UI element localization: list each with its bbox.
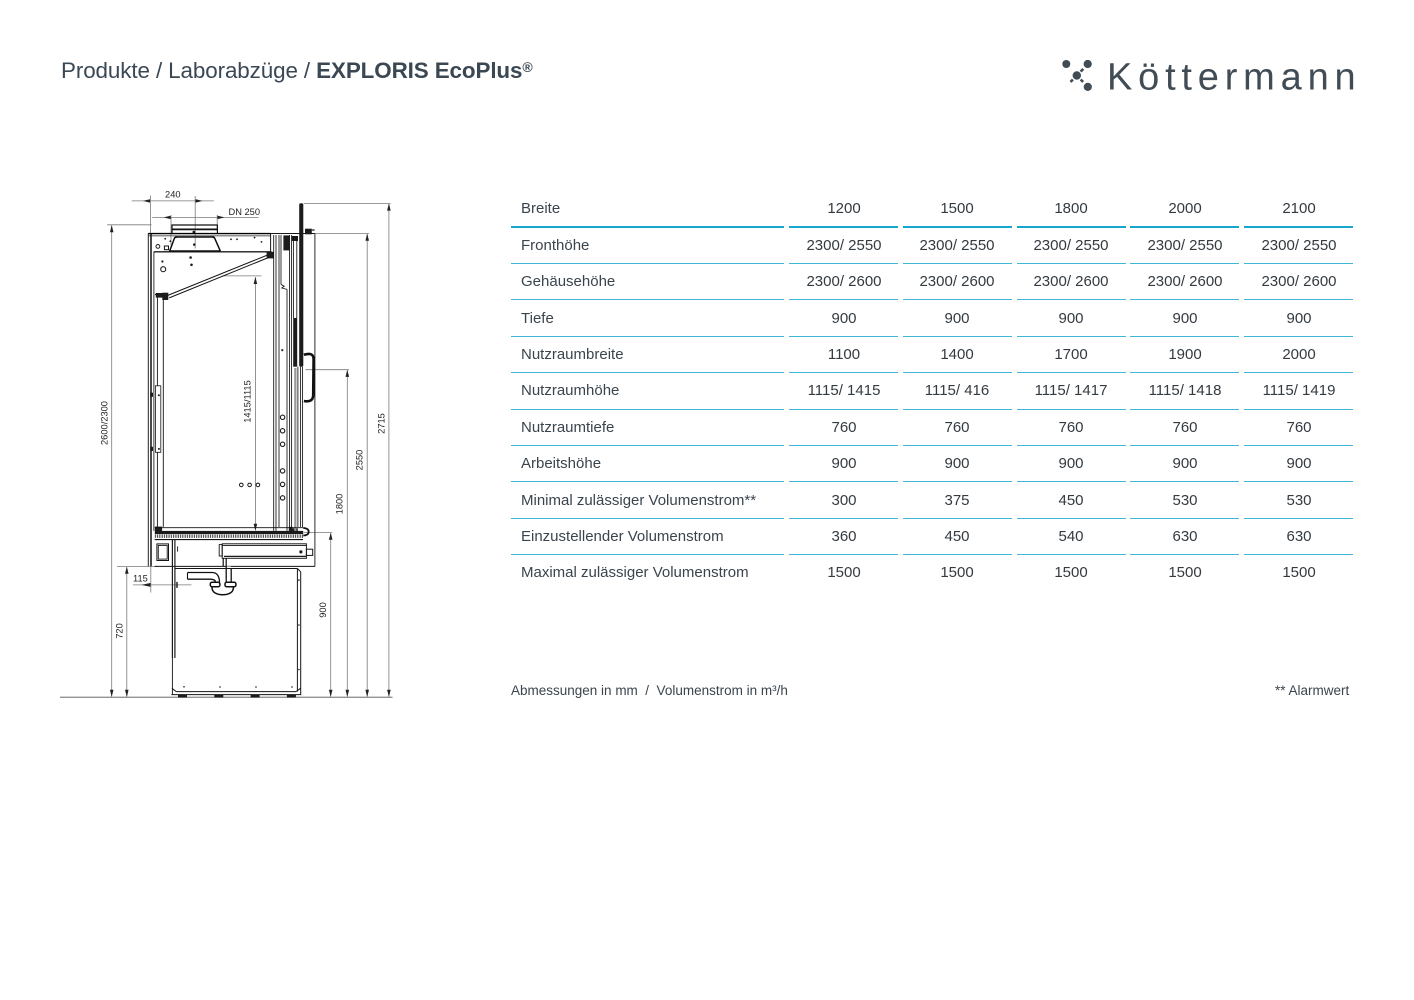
svg-text:1415/1115: 1415/1115 <box>242 380 252 423</box>
svg-text:115: 115 <box>133 574 148 584</box>
svg-text:900: 900 <box>318 602 328 618</box>
svg-text:2600/2300: 2600/2300 <box>99 401 109 445</box>
svg-text:2550: 2550 <box>355 450 365 471</box>
svg-text:1800: 1800 <box>335 494 345 515</box>
svg-text:DN 250: DN 250 <box>229 207 261 217</box>
svg-text:2715: 2715 <box>376 413 386 434</box>
svg-text:240: 240 <box>165 189 181 199</box>
svg-text:720: 720 <box>114 623 124 639</box>
